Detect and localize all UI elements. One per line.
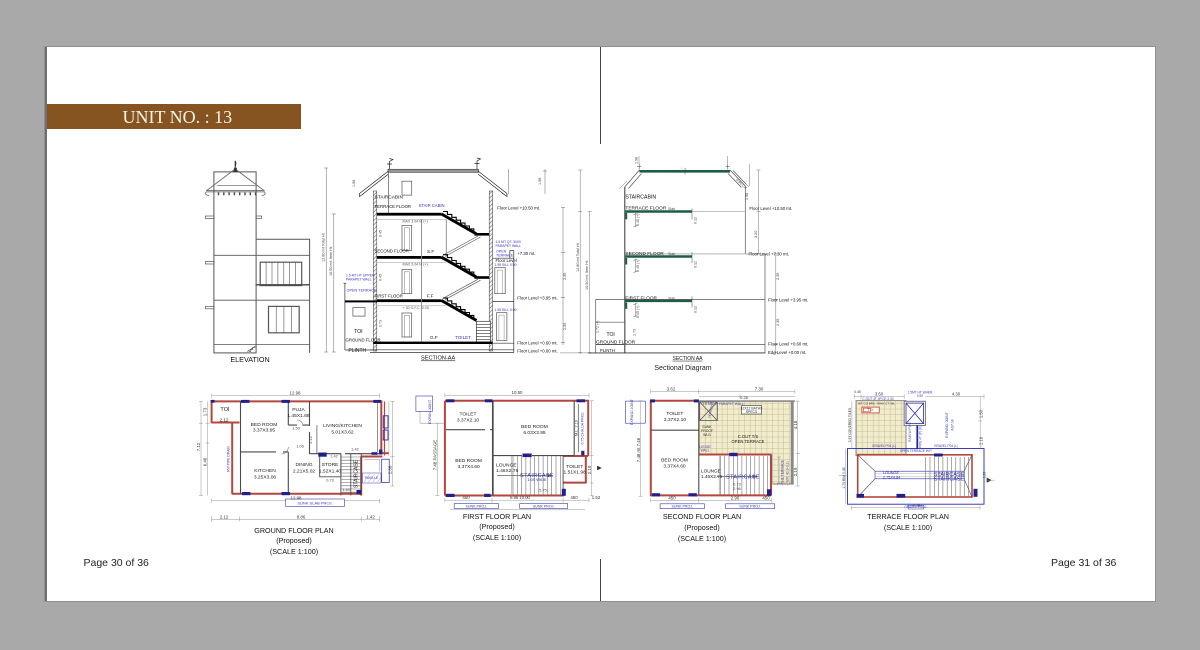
- svg-text:1.73: 1.73: [633, 329, 637, 336]
- svg-text:6.40: 6.40: [203, 457, 208, 466]
- svg-text:OPEN TERRACE: OPEN TERRACE: [347, 289, 377, 293]
- svg-text:GROUND FLOOR: GROUND FLOOR: [596, 340, 636, 346]
- svg-text:0.45 (+): 0.45 (+): [636, 214, 640, 227]
- svg-text:0.45: 0.45: [379, 274, 383, 281]
- svg-text:2.19: 2.19: [587, 465, 592, 474]
- svg-text:0.45: 0.45: [854, 390, 861, 394]
- svg-text:1.50: 1.50: [292, 427, 299, 431]
- svg-text:7.48 PASSAGE: 7.48 PASSAGE: [432, 440, 437, 470]
- svg-text:AS7.08: AS7.08: [951, 419, 955, 430]
- svg-text:G.F: G.F: [430, 335, 438, 340]
- svg-text:1.06: 1.06: [296, 445, 303, 449]
- svg-text:Floor Level +3.95 mt.: Floor Level +3.95 mt.: [517, 296, 557, 301]
- svg-text:PARAPET WALL: PARAPET WALL: [346, 278, 372, 282]
- svg-text:BED ROOM: BED ROOM: [521, 424, 548, 430]
- svg-text:1.45X1.68: 1.45X1.68: [287, 413, 310, 419]
- svg-text:SECTION AA: SECTION AA: [673, 356, 704, 362]
- svg-text:C.OUT 4T 4P.CE 2.30: C.OUT 4T 4P.CE 2.30: [862, 397, 893, 401]
- svg-text:2.19: 2.19: [979, 436, 984, 445]
- svg-text:450: 450: [570, 495, 578, 500]
- svg-text:+ 30 G.F.C. 0.05: + 30 G.F.C. 0.05: [403, 306, 429, 310]
- svg-text:2.12: 2.12: [220, 417, 229, 422]
- svg-text:1.42: 1.42: [330, 455, 337, 459]
- svg-text:SUNK PROJ.: SUNK PROJ.: [739, 505, 761, 509]
- svg-text:5.01X3.62: 5.01X3.62: [331, 430, 354, 436]
- svg-text:1.98: 1.98: [745, 193, 749, 200]
- svg-text:TOILET: TOILET: [566, 464, 583, 470]
- svg-text:12.80 mt Total Ht: 12.80 mt Total Ht: [322, 232, 326, 262]
- svg-text:LOUNGE: LOUNGE: [883, 471, 900, 475]
- svg-text:1.52X1.40: 1.52X1.40: [319, 469, 342, 475]
- svg-text:1.00 WIDE: 1.00 WIDE: [527, 477, 547, 482]
- svg-text:PAVILLE: PAVILLE: [365, 476, 379, 480]
- svg-text:1.73: 1.73: [203, 407, 208, 416]
- svg-text:LOUNGE: LOUNGE: [496, 463, 517, 469]
- svg-text:STAIRCABIN: STAIRCABIN: [375, 195, 404, 201]
- svg-text:0.12: 0.12: [694, 217, 698, 224]
- svg-text:OPEN TERRACE W.P.: OPEN TERRACE W.P.: [900, 449, 932, 453]
- svg-text:10.50 mt. Item Ht.: 10.50 mt. Item Ht.: [585, 260, 589, 290]
- svg-text:0.12: 0.12: [694, 261, 698, 268]
- svg-text:Slab: Slab: [680, 167, 687, 171]
- svg-text:1.73: 1.73: [379, 320, 383, 327]
- svg-text:5.75: 5.75: [539, 489, 546, 493]
- svg-text:1.98: 1.98: [352, 180, 356, 187]
- svg-text:8.86 10.00: 8.86 10.00: [510, 495, 530, 500]
- svg-text:12.80 mt Total Ht: 12.80 mt Total Ht: [576, 242, 580, 272]
- svg-text:STAIRCABIN: STAIRCABIN: [625, 194, 656, 200]
- svg-text:W.P. 40 (+0.1): W.P. 40 (+0.1): [786, 461, 790, 482]
- svg-text:0.45: 0.45: [379, 230, 383, 237]
- svg-text:6.03X3.95: 6.03X3.95: [523, 430, 546, 436]
- svg-text:RAIN W PIPE: RAIN W PIPE: [908, 422, 912, 442]
- svg-text:LIVING/KITCHEN: LIVING/KITCHEN: [323, 423, 362, 429]
- svg-text:0.12: 0.12: [694, 306, 698, 313]
- svg-text:TOI: TOI: [220, 407, 230, 413]
- svg-text:1.98: 1.98: [538, 178, 542, 185]
- svg-text:SECOND FLOOR: SECOND FLOOR: [625, 251, 664, 257]
- svg-text:7.12: 7.12: [196, 442, 201, 451]
- svg-text:4.18: 4.18: [793, 420, 798, 429]
- svg-text:Floor Level +7.30 mt.: Floor Level +7.30 mt.: [749, 251, 789, 256]
- svg-text:SUNK PROJ.: SUNK PROJ.: [533, 505, 555, 509]
- svg-text:Floor Level +0.00 mt.: Floor Level +0.00 mt.: [517, 349, 557, 354]
- svg-text:STAIR CABIN: STAIR CABIN: [419, 203, 445, 208]
- svg-text:SUNK PROJ.: SUNK PROJ.: [672, 505, 694, 509]
- svg-text:STAIRCASE: STAIRCASE: [354, 459, 360, 488]
- svg-text:PIPE 4T (P) (F): PIPE 4T (P) (F): [919, 426, 923, 448]
- svg-text:1.40: 1.40: [342, 488, 349, 492]
- svg-text:1.95 SILL 0.90: 1.95 SILL 0.90: [495, 308, 517, 312]
- svg-text:WALL: WALL: [701, 449, 710, 453]
- svg-text:450: 450: [762, 495, 770, 500]
- svg-text:Slab: Slab: [668, 207, 675, 211]
- svg-text:WLG: WLG: [703, 433, 711, 437]
- svg-text:FIRST FLOOR: FIRST FLOOR: [375, 294, 403, 299]
- svg-text:Floor Level +3.95 mt.: Floor Level +3.95 mt.: [768, 297, 808, 302]
- svg-text:450: 450: [462, 495, 470, 500]
- svg-text:3.37X3.95: 3.37X3.95: [253, 427, 276, 433]
- svg-text:1.51X1.98: 1.51X1.98: [564, 470, 587, 476]
- svg-text:0.73: 0.73: [326, 479, 333, 483]
- svg-text:KITCHEN: KITCHEN: [254, 468, 276, 474]
- svg-text:Floor Level +10.50 mt.: Floor Level +10.50 mt.: [497, 206, 540, 211]
- svg-text:2.21X5.02: 2.21X5.02: [293, 469, 316, 475]
- svg-text:8.86: 8.86: [297, 514, 306, 519]
- svg-text:OPEN TERRACE: OPEN TERRACE: [732, 439, 765, 444]
- svg-text:7.48 mt 7.46: 7.48 mt 7.46: [636, 437, 641, 462]
- svg-text:PLINTH: PLINTH: [348, 348, 366, 354]
- svg-text:STAIRCASE: STAIRCASE: [934, 477, 965, 483]
- svg-text:FIRST FLOOR: FIRST FLOOR: [625, 295, 657, 301]
- svg-text:1.42: 1.42: [366, 514, 375, 519]
- svg-text:Edg Level +0.00 mt.: Edg Level +0.00 mt.: [768, 350, 806, 355]
- svg-text:TERRACE: TERRACE: [496, 254, 514, 258]
- svg-text:2.96: 2.96: [731, 495, 740, 500]
- svg-text:1.50: 1.50: [979, 409, 984, 418]
- svg-text:MAX 3.04 M (+): MAX 3.04 M (+): [403, 220, 428, 224]
- svg-text:GRAVEL PROJ.: GRAVEL PROJ.: [904, 505, 927, 509]
- svg-text:1.52: 1.52: [592, 495, 601, 500]
- svg-text:TOILET: TOILET: [455, 335, 471, 340]
- svg-text:2.96: 2.96: [733, 487, 740, 491]
- svg-text:EXPAND. JOINT: EXPAND. JOINT: [945, 412, 949, 437]
- svg-text:0.75 CHAJJA PROJ.: 0.75 CHAJJA PROJ.: [581, 412, 585, 445]
- svg-text:2.12: 2.12: [220, 514, 229, 519]
- svg-text:1.42: 1.42: [351, 448, 358, 452]
- svg-text:0.90: 0.90: [917, 394, 923, 398]
- svg-text:STAIRCASE: STAIRCASE: [726, 475, 760, 481]
- svg-text:PUJA: PUJA: [292, 407, 305, 413]
- svg-text:3.37X2.10: 3.37X2.10: [457, 418, 480, 424]
- svg-text:2.75X4.84: 2.75X4.84: [883, 476, 900, 480]
- svg-text:1.98: 1.98: [635, 157, 639, 164]
- svg-text:GROUND FLOOR: GROUND FLOOR: [346, 338, 381, 343]
- svg-text:3.20: 3.20: [754, 231, 758, 238]
- svg-text:Slab: Slab: [668, 296, 675, 300]
- svg-text:Floor Level +0.60 mt.: Floor Level +0.60 mt.: [768, 342, 808, 347]
- svg-text:1.95 SILL 0.90: 1.95 SILL 0.90: [495, 263, 517, 267]
- svg-text:GRAVEL P04 (L): GRAVEL P04 (L): [872, 444, 896, 448]
- svg-text:3.60: 3.60: [875, 391, 884, 396]
- svg-text:4.30: 4.30: [952, 391, 961, 396]
- svg-text:3.37X2.10: 3.37X2.10: [664, 417, 687, 423]
- svg-text:TOI: TOI: [607, 332, 615, 338]
- svg-text:7.30: 7.30: [755, 386, 764, 391]
- svg-text:THE TERRACE: THE TERRACE: [781, 459, 785, 484]
- svg-text:1.5 MT HT PARAPET WALL: 1.5 MT HT PARAPET WALL: [702, 402, 743, 406]
- svg-text:450: 450: [668, 495, 676, 500]
- svg-text:3.37X4.60: 3.37X4.60: [457, 464, 480, 470]
- svg-text:1.72 (+): 1.72 (+): [595, 321, 599, 334]
- svg-text:0.73: 0.73: [733, 483, 740, 487]
- svg-text:1.46X2.75: 1.46X2.75: [701, 474, 723, 479]
- svg-text:SECTION-AA: SECTION-AA: [421, 356, 455, 362]
- svg-text:2.35: 2.35: [563, 323, 567, 330]
- svg-text:TOILET: TOILET: [666, 411, 683, 417]
- svg-text:TOI: TOI: [354, 329, 363, 335]
- svg-text:PLINTH: PLINTH: [600, 348, 615, 353]
- svg-text:1.23: 1.23: [983, 472, 987, 479]
- svg-text:M.L. 2.19: M.L. 2.19: [574, 420, 578, 436]
- svg-text:WT CO BRK. TANK CT. WL: WT CO BRK. TANK CT. WL: [858, 402, 895, 406]
- svg-text:BED ROOM: BED ROOM: [455, 458, 482, 464]
- svg-text:TERRACE FLOOR: TERRACE FLOOR: [375, 204, 412, 209]
- svg-text:BED ROOM: BED ROOM: [661, 457, 688, 463]
- svg-text:2.35: 2.35: [776, 273, 780, 280]
- svg-text:Slab: Slab: [668, 252, 675, 256]
- svg-text:LOUNGE: LOUNGE: [701, 469, 721, 474]
- svg-text:1.46X2.75: 1.46X2.75: [496, 468, 519, 474]
- svg-text:10.50: 10.50: [512, 390, 524, 395]
- svg-text:0.45 (+): 0.45 (+): [636, 260, 640, 273]
- svg-text:10.50 mt. Item Ht.: 10.50 mt. Item Ht.: [329, 246, 333, 276]
- svg-text:3.62: 3.62: [667, 386, 676, 391]
- svg-text:2.36: 2.36: [388, 465, 393, 474]
- svg-text:12.98: 12.98: [290, 391, 302, 396]
- svg-text:MAX 3.04 M (+): MAX 3.04 M (+): [403, 263, 428, 267]
- svg-text:EXPAN. JOINT: EXPAN. JOINT: [428, 399, 432, 424]
- svg-text:RW PIPE DRAIN: RW PIPE DRAIN: [226, 446, 230, 472]
- svg-text:1.73 RIM 0.45: 1.73 RIM 0.45: [842, 467, 846, 488]
- svg-text:DINING: DINING: [295, 462, 312, 468]
- svg-text:3.25X3.06: 3.25X3.06: [254, 475, 277, 481]
- svg-text:BED ROOM: BED ROOM: [251, 422, 278, 428]
- svg-text:3.97 COVERED TILES: 3.97 COVERED TILES: [848, 407, 852, 442]
- svg-text:SPECS: SPECS: [746, 410, 758, 414]
- svg-text:3.37X4.60: 3.37X4.60: [663, 463, 686, 469]
- svg-text:EXPAND JOINT: EXPAND JOINT: [630, 398, 634, 425]
- svg-text:SECOND FLOOR: SECOND FLOOR: [375, 249, 409, 254]
- svg-text:S.F: S.F: [427, 249, 434, 254]
- svg-text:2.12: 2.12: [309, 436, 313, 443]
- svg-text:GRAVEL P04 (L): GRAVEL P04 (L): [934, 444, 958, 448]
- svg-text:STORE: STORE: [322, 462, 339, 468]
- svg-text:2.19: 2.19: [793, 467, 798, 476]
- svg-text:SUNK PROJ.: SUNK PROJ.: [466, 505, 488, 509]
- svg-text:TERRACE FLOOR: TERRACE FLOOR: [625, 205, 666, 211]
- svg-text:2.35: 2.35: [563, 273, 567, 280]
- svg-text:SUNK SLAB PROJ.: SUNK SLAB PROJ.: [297, 501, 332, 506]
- svg-text:+7.30 mt.: +7.30 mt.: [517, 251, 535, 256]
- svg-text:0.45 (+): 0.45 (+): [636, 306, 640, 319]
- svg-text:Floor Level +0.60 mt.: Floor Level +0.60 mt.: [517, 341, 557, 346]
- svg-text:TOI: TOI: [868, 408, 874, 412]
- svg-text:0.28: 0.28: [740, 396, 747, 400]
- svg-text:2.35: 2.35: [776, 319, 780, 326]
- svg-text:F.F: F.F: [427, 294, 434, 299]
- svg-text:Floor Level +10.50 mt.: Floor Level +10.50 mt.: [749, 206, 792, 211]
- svg-text:TOILET: TOILET: [459, 412, 476, 418]
- svg-text:PARAPET WALL: PARAPET WALL: [496, 244, 522, 248]
